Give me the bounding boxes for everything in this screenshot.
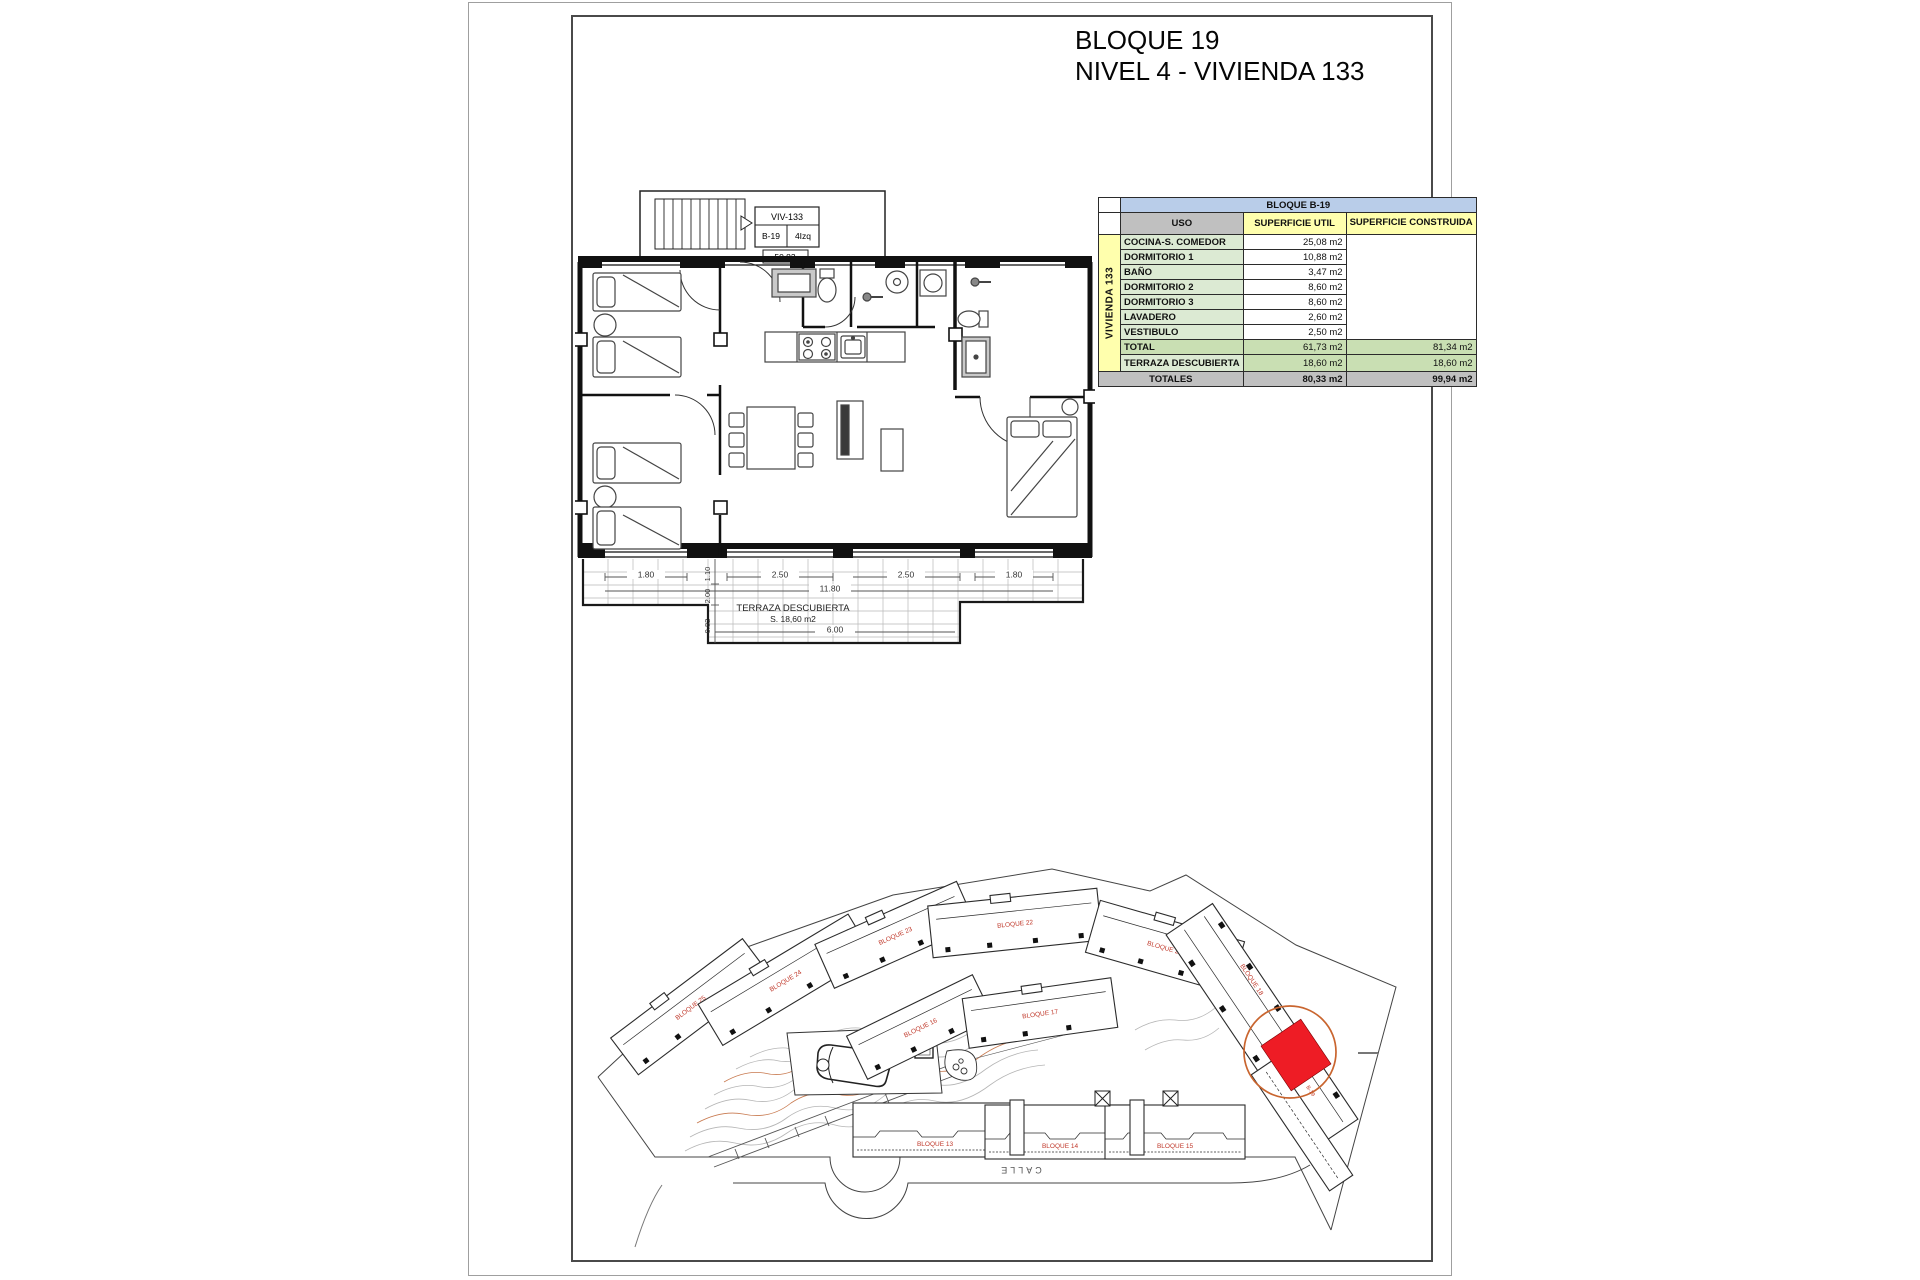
col-header-uso: USO [1121,213,1244,235]
bath-sink-icon [772,269,816,297]
unit-id: VIV-133 [771,212,803,222]
living-furniture [729,401,903,471]
uso-cell: COCINA-S. COMEDOR [1121,235,1244,250]
crossed-box-icon [1163,1091,1178,1106]
top-windows [578,256,1092,268]
svg-text:6.00: 6.00 [827,625,844,635]
stair-treads-icon [664,199,736,249]
double-bed-icon [1007,417,1077,517]
uso-cell: VESTIBULO [1121,325,1244,340]
uso-cell: LAVADERO [1121,310,1244,325]
washer-icon [894,279,901,286]
util-cell: 10,88 m2 [1243,250,1346,265]
sheet-title-line2: NIVEL 4 - VIVIENDA 133 [1075,56,1365,87]
group-label-cell: VIVIENDA 133 [1099,235,1121,372]
crossed-box-icon [1095,1091,1110,1106]
uso-cell: TOTAL [1121,340,1244,355]
tv-unit-icon [837,401,863,459]
terrace: 1.80 2.50 2.50 1.80 11.80 6.00 1.10 2.00… [583,559,1083,643]
uso-cell: DORMITORIO 1 [1121,250,1244,265]
util-cell: 8,60 m2 [1243,280,1346,295]
toilet-icon [958,311,988,327]
util-cell: 8,60 m2 [1243,295,1346,310]
terrace-area-label: S. 18,60 m2 [770,614,816,624]
areas-table: BLOQUE B-19 USO SUPERFICIE UTIL SUPERFIC… [1098,197,1477,387]
building-block: BLOQUE 15 [1105,1105,1245,1159]
siteplan-drawing: .bld{fill:#ffffff;stroke:#2b2b2b;stroke-… [590,855,1435,1265]
table-row-totals: TOTALES 80,33 m2 99,94 m2 [1099,372,1477,387]
side-table-icon [1062,399,1078,415]
stove-icon [799,334,835,360]
svg-text:BLOQUE 13: BLOQUE 13 [917,1141,954,1148]
faucet-icon [863,293,883,301]
svg-text:BLOQUE 15: BLOQUE 15 [1157,1143,1194,1150]
util-cell: 2,60 m2 [1243,310,1346,325]
totals-label-cell: TOTALES [1099,372,1244,387]
table-row-title: BLOQUE B-19 [1099,198,1477,213]
unit-position: 4Izq [795,231,811,241]
kitchen-sink-icon [841,336,865,358]
totals-construida-cell: 99,94 m2 [1346,372,1476,387]
util-cell: 18,60 m2 [1243,355,1346,372]
bed-icon [593,507,681,549]
terrace-label: TERRAZA DESCUBIERTA [736,603,850,614]
bed-icon [593,443,681,483]
bedroom3-furniture [1007,399,1078,517]
kitchen-furniture [765,332,905,362]
svg-text:2.50: 2.50 [772,570,789,580]
util-cell: 25,08 m2 [1243,235,1346,250]
toilet-icon [818,269,836,302]
faucet-icon [971,278,991,286]
sideboard-icon [881,429,903,471]
title-block: BLOQUE 19 NIVEL 4 - VIVIENDA 133 [1075,25,1365,87]
bathroom2-fixtures [958,278,991,377]
table-row-total: TOTAL 61,73 m2 81,34 m2 [1099,340,1477,355]
bed-icon [593,273,681,311]
sheet-title-line1: BLOQUE 19 [1075,25,1365,56]
side-table-icon [594,486,616,508]
table-row: VIVIENDA 133 COCINA-S. COMEDOR 25,08 m2 [1099,235,1477,250]
shower-icon [962,337,990,377]
util-cell: 2,50 m2 [1243,325,1346,340]
spacer-cell [1099,213,1121,235]
unit-block: B-19 [762,231,780,241]
svg-text:1.80: 1.80 [638,570,655,580]
washing-machine-icon [920,270,946,296]
construida-empty-cell [1346,235,1476,340]
bedroom1-furniture [593,273,681,377]
uso-cell: DORMITORIO 3 [1121,295,1244,310]
building-blocks: BLOQUE 25 BLOQUE 24 BLOQUE 23 BLOQUE 22 [608,878,1358,1191]
svg-text:1.10: 1.10 [703,567,712,582]
construida-cell: 81,34 m2 [1346,340,1476,355]
bathroom1-fixtures [772,269,836,302]
table-row-headers: USO SUPERFICIE UTIL SUPERFICIE CONSTRUID… [1099,213,1477,235]
util-cell: 3,47 m2 [1243,265,1346,280]
uso-cell: TERRAZA DESCUBIERTA [1121,355,1244,372]
col-header-construida: SUPERFICIE CONSTRUIDA [1346,213,1476,235]
util-cell: 61,73 m2 [1243,340,1346,355]
svg-text:0.82: 0.82 [703,619,712,634]
svg-text:11.80: 11.80 [820,584,841,594]
building-block: BLOQUE 17 [962,974,1118,1048]
construida-cell: 18,60 m2 [1346,355,1476,372]
dining-table-icon [729,407,813,469]
svg-text:2.00: 2.00 [703,589,712,604]
uso-cell: BAÑO [1121,265,1244,280]
totals-util-cell: 80,33 m2 [1243,372,1346,387]
architectural-sheet: { "sheet": { "title_line1": "BLOQUE 19",… [0,0,1920,1280]
stair-direction-arrow-icon [741,216,752,230]
col-header-util: SUPERFICIE UTIL [1243,213,1346,235]
uso-cell: DORMITORIO 2 [1121,280,1244,295]
side-table-icon [594,314,616,336]
connector [1010,1100,1024,1155]
connector [1130,1100,1144,1155]
table-row-terrace: TERRAZA DESCUBIERTA 18,60 m2 18,60 m2 [1099,355,1477,372]
svg-text:1.80: 1.80 [1006,570,1023,580]
table-title: BLOQUE B-19 [1121,198,1477,213]
laundry-fixtures [863,270,946,301]
street-label: CALLE [998,1165,1042,1175]
svg-text:2.50: 2.50 [898,570,915,580]
unit-tag-box: VIV-133 B-19 4Izq 50.83 [755,207,819,263]
bedroom2-furniture [593,443,681,549]
svg-text:BLOQUE 14: BLOQUE 14 [1042,1143,1079,1150]
floorplan-drawing: VIV-133 B-19 4Izq 50.83 [575,185,1095,655]
bed-icon [593,337,681,377]
spacer-cell [1099,198,1121,213]
